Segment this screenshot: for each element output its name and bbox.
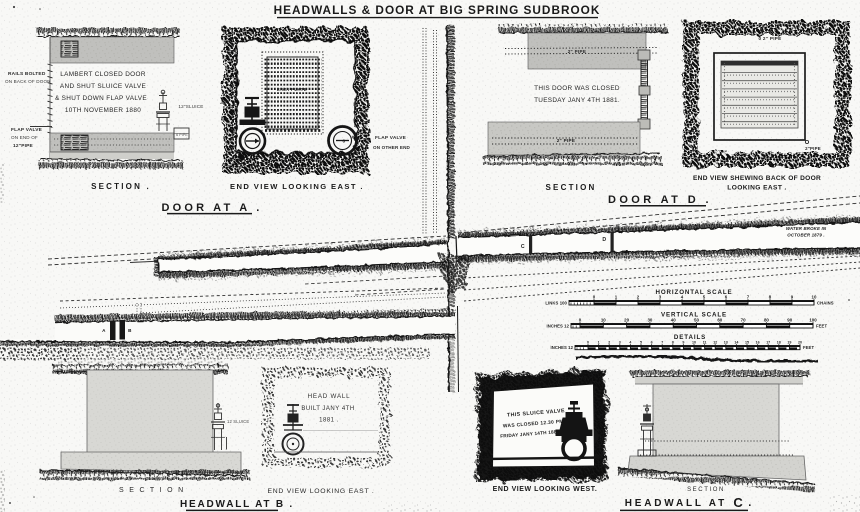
svg-text:70: 70: [741, 317, 746, 322]
svg-text:LAMBERT CLOSED DOOR: LAMBERT CLOSED DOOR: [60, 71, 146, 78]
svg-text:10: 10: [812, 294, 817, 299]
svg-text:18: 18: [777, 340, 781, 344]
svg-text:.: .: [748, 497, 752, 509]
svg-text:DOOR AT D .: DOOR AT D .: [608, 194, 712, 206]
svg-text:12: 12: [713, 340, 717, 344]
svg-text:20: 20: [624, 317, 629, 322]
svg-text:3: 3: [619, 340, 621, 344]
svg-text:0 2" PIPE: 0 2" PIPE: [312, 372, 332, 377]
svg-text:ON END OF: ON END OF: [11, 135, 38, 140]
svg-text:DOOR AT A .: DOOR AT A .: [162, 202, 263, 214]
svg-text:15: 15: [745, 340, 749, 344]
svg-text:WATER BROKE IN: WATER BROKE IN: [786, 226, 827, 231]
svg-text:50: 50: [694, 317, 699, 322]
svg-text:HEADWALL AT B .: HEADWALL AT B .: [180, 499, 294, 510]
svg-text:12 SLUICE: 12 SLUICE: [227, 419, 249, 424]
svg-text:12"SLUICE: 12"SLUICE: [178, 104, 203, 109]
svg-text:14: 14: [734, 340, 738, 344]
svg-text:SECTION: SECTION: [687, 487, 725, 493]
svg-text:80: 80: [764, 317, 769, 322]
svg-text:4: 4: [629, 340, 631, 344]
svg-text:100: 100: [809, 317, 817, 322]
svg-text:SECTION .: SECTION .: [91, 182, 151, 191]
svg-text:FEET: FEET: [816, 324, 827, 329]
svg-text:2" PIPE: 2" PIPE: [557, 138, 576, 143]
svg-text:LOOKING EAST .: LOOKING EAST .: [727, 185, 786, 192]
svg-text:BUILT JANY 4TH: BUILT JANY 4TH: [301, 406, 354, 412]
svg-text:10TH NOVEMBER 1880: 10TH NOVEMBER 1880: [65, 107, 141, 114]
svg-text:INCHES 12: INCHES 12: [550, 345, 573, 350]
svg-text:CHAINS: CHAINS: [817, 301, 834, 306]
svg-text:END VIEW LOOKING EAST .: END VIEW LOOKING EAST .: [267, 488, 374, 495]
svg-text:8: 8: [672, 340, 674, 344]
svg-text:S E C T I O N: S E C T I O N: [119, 487, 185, 494]
svg-text:16: 16: [756, 340, 760, 344]
svg-text:LINKS 100: LINKS 100: [545, 301, 567, 306]
svg-text:OCTOBER 1879 .: OCTOBER 1879 .: [787, 233, 824, 238]
svg-text:D: D: [602, 237, 606, 243]
svg-text:END VIEW SHEWING BACK OF DOOR: END VIEW SHEWING BACK OF DOOR: [693, 175, 821, 182]
svg-text:THIS DOOR WAS CLOSED: THIS DOOR WAS CLOSED: [534, 85, 620, 92]
svg-text:2: 2: [608, 340, 610, 344]
svg-text:17: 17: [766, 340, 770, 344]
svg-text:ON BACK OF DOOR: ON BACK OF DOOR: [5, 79, 51, 84]
svg-text:10: 10: [692, 340, 696, 344]
svg-text:FLAP VALVE: FLAP VALVE: [375, 135, 407, 141]
svg-text:FEET: FEET: [803, 345, 814, 350]
svg-text:END VIEW LOOKING EAST .: END VIEW LOOKING EAST .: [230, 182, 364, 191]
svg-text:7: 7: [661, 340, 663, 344]
svg-text:C: C: [521, 244, 525, 250]
svg-text:RAILS BOLTED: RAILS BOLTED: [8, 71, 46, 77]
svg-text:10: 10: [601, 317, 606, 322]
svg-text:20: 20: [798, 340, 802, 344]
svg-text:13: 13: [724, 340, 728, 344]
svg-text:DETAILS: DETAILS: [674, 334, 706, 341]
svg-text:AND SHUT SLUICE VALVE: AND SHUT SLUICE VALVE: [60, 83, 146, 90]
svg-text:E.W.I PLATE: E.W.I PLATE: [277, 87, 307, 92]
svg-text:6 PIPE: 6 PIPE: [176, 133, 188, 137]
svg-text:A: A: [102, 328, 106, 333]
svg-text:C: C: [733, 495, 744, 510]
svg-text:9: 9: [682, 340, 684, 344]
svg-text:2"PIPE: 2"PIPE: [805, 146, 821, 151]
svg-text:6: 6: [342, 139, 345, 144]
svg-text:19: 19: [787, 340, 791, 344]
svg-text:ON OTHER END: ON OTHER END: [373, 145, 411, 150]
svg-text:40: 40: [671, 317, 676, 322]
svg-text:END VIEW LOOKING WEST.: END VIEW LOOKING WEST.: [493, 486, 598, 493]
svg-text:90: 90: [787, 317, 792, 322]
svg-text:30: 30: [647, 317, 652, 322]
svg-text:5: 5: [640, 340, 642, 344]
svg-text:TUESDAY JANY 4TH 1881.: TUESDAY JANY 4TH 1881.: [534, 97, 620, 104]
svg-text:0 2" PIPE: 0 2" PIPE: [758, 36, 781, 41]
svg-text:11: 11: [703, 340, 707, 344]
svg-text:1: 1: [598, 340, 600, 344]
svg-text:HORIZONTAL SCALE: HORIZONTAL SCALE: [655, 289, 732, 296]
svg-text:HEADWALLS & DOOR AT BIG S: HEADWALLS & DOOR AT BIG SPRING SUDBROOK: [274, 3, 601, 17]
svg-text:FLAP VALVE: FLAP VALVE: [11, 127, 43, 133]
svg-text:0: 0: [587, 340, 589, 344]
svg-text:1881 .: 1881 .: [319, 418, 339, 424]
svg-text:SECTION: SECTION: [546, 183, 597, 192]
svg-text:INCHES 12: INCHES 12: [546, 324, 569, 329]
svg-text:12"PIPE: 12"PIPE: [13, 143, 34, 149]
svg-text:& SHUT DOWN FLAP VALVE: & SHUT DOWN FLAP VALVE: [55, 95, 147, 102]
svg-text:60: 60: [717, 317, 722, 322]
svg-text:6: 6: [651, 340, 653, 344]
svg-text:HEADWALL AT: HEADWALL AT: [625, 498, 727, 509]
svg-text:B: B: [128, 328, 132, 333]
svg-text:HEAD WALL: HEAD WALL: [308, 393, 351, 400]
svg-text:2" PIPE: 2" PIPE: [568, 49, 587, 54]
